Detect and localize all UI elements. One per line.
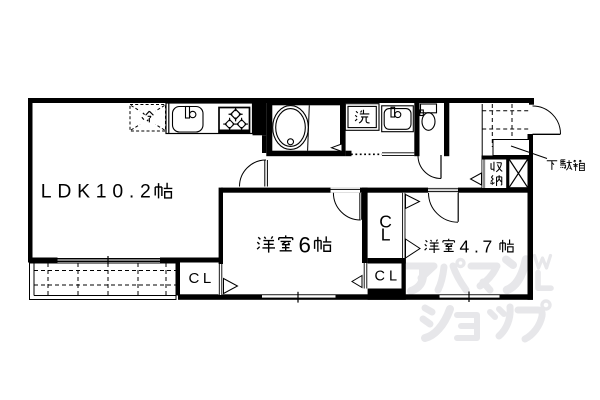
svg-text:L: L xyxy=(381,225,391,245)
svg-text:.: . xyxy=(474,237,479,257)
svg-text:6: 6 xyxy=(299,233,311,258)
svg-text:4: 4 xyxy=(460,237,470,257)
svg-text:7: 7 xyxy=(483,237,493,257)
svg-text:CL: CL xyxy=(189,270,215,287)
svg-text:CL: CL xyxy=(375,269,402,285)
